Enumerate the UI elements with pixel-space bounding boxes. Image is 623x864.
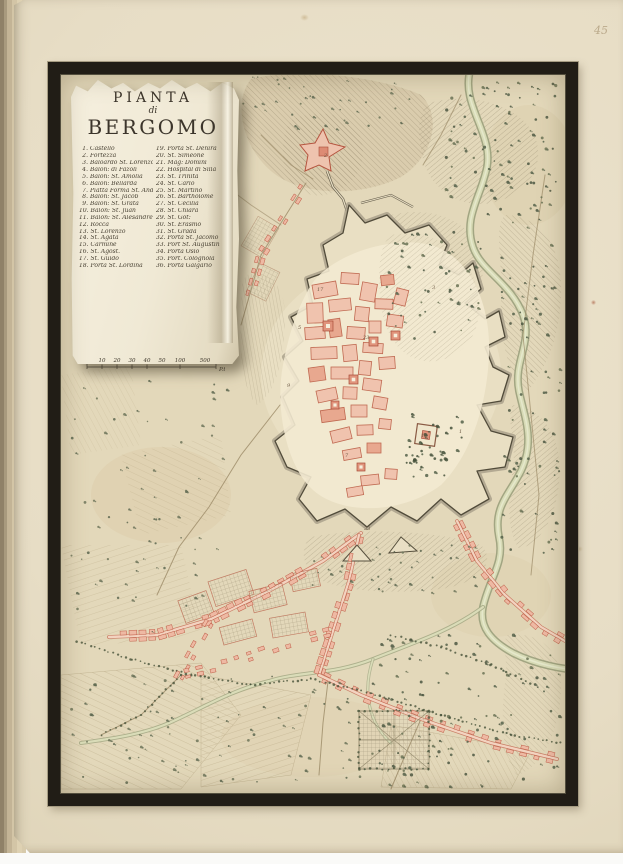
svg-text:10: 10 — [99, 358, 106, 364]
legend-item: 1.Castello — [79, 146, 153, 153]
map-title: PIANTA di BERGOMO — [79, 90, 227, 139]
legend-item: 8.Balon: St. Jacob — [79, 194, 153, 201]
title-line-3: BERGOMO — [79, 116, 227, 139]
title-cartouche: PIANTA di BERGOMO 1.Castello2.Fortezza3.… — [71, 80, 239, 364]
map-legend: 1.Castello2.Fortezza3.Baloardo St. Loren… — [79, 146, 227, 269]
legend-item: 17.St. Guido — [79, 256, 153, 263]
svg-text:33: 33 — [364, 526, 370, 532]
svg-text:2: 2 — [323, 153, 327, 159]
legend-item: 9.Balon: St. Grata — [79, 201, 153, 208]
legend-item: 36.Porta Galgario — [156, 263, 227, 270]
legend-item: 24.St. Carlo — [156, 181, 227, 188]
legend-item: 5.Balon: St. Amolia — [79, 174, 153, 181]
legend-item: 22.Hospital di Silla — [156, 167, 227, 174]
legend-item: 3.Baloardo St. Lorenzo — [79, 160, 153, 167]
legend-item: 30.St. Erasmo — [156, 222, 227, 229]
legend-item: 26.St. Bartholome — [156, 194, 227, 201]
legend-item: 25.St. Martino — [156, 188, 227, 195]
legend-item: 19.Porta St. Denira — [156, 146, 227, 153]
photographed-atlas-page: 45 — [0, 0, 623, 864]
legend-item: 27.St. Cecilia — [156, 201, 227, 208]
legend-item: 16.St. Agost. — [79, 249, 153, 256]
legend-item: 29.St. Got: — [156, 215, 227, 222]
legend-item: 33.Port St. Augustin — [156, 242, 227, 249]
svg-text:100: 100 — [175, 358, 186, 364]
legend-item: 31.St. Grada — [156, 229, 227, 236]
legend-item: 18.Porta St. Lordina — [79, 263, 153, 270]
map-sheet: 12357912172333 PIANTA di BERGOMO 1.Caste… — [61, 75, 565, 793]
legend-item: 13.St. Lorenzo — [79, 229, 153, 236]
legend-item: 14.St. Agata — [79, 235, 153, 242]
svg-text:17: 17 — [317, 287, 324, 293]
black-mat-frame: 12357912172333 PIANTA di BERGOMO 1.Caste… — [48, 62, 578, 806]
svg-text:50: 50 — [159, 358, 166, 364]
legend-item: 23.St. Trinita — [156, 174, 227, 181]
legend-item: 32.Porta St. Jacomo — [156, 235, 227, 242]
title-line-1: PIANTA — [79, 90, 227, 106]
legend-item: 2.Fortezza — [79, 153, 153, 160]
svg-text:12: 12 — [421, 433, 427, 439]
svg-text:20: 20 — [113, 358, 121, 364]
legend-item: 4.Balon: di Fazoli — [79, 167, 153, 174]
legend-item: 10.Balon: St. Juan — [79, 208, 153, 215]
svg-text:5: 5 — [298, 325, 301, 331]
legend-item: 12.Rocca — [79, 222, 153, 229]
svg-text:23: 23 — [362, 335, 369, 341]
svg-text:1: 1 — [459, 429, 462, 435]
legend-item: 11.Balon: St. Alesandre — [79, 215, 153, 222]
legend-item: 35.Port. Colognola — [156, 256, 227, 263]
page-number: 45 — [594, 24, 608, 37]
svg-text:30: 30 — [129, 358, 136, 364]
legend-item: 15.Carmine — [79, 242, 153, 249]
svg-text:40: 40 — [143, 358, 151, 364]
svg-text:500: 500 — [200, 358, 211, 364]
legend-item: 6.Balon: Bellarda — [79, 181, 153, 188]
legend-item: 7.Piatta Forma St. Andrea — [79, 188, 153, 195]
svg-text:P.ti Rg. B.: P.ti Rg. B. — [218, 367, 225, 372]
svg-text:3: 3 — [432, 285, 435, 291]
legend-item: 28.St. Chiara — [156, 208, 227, 215]
legend-item: 34.Porta Osio — [156, 249, 227, 256]
legend-item: 20.St. Simeone — [156, 153, 227, 160]
legend-item: 21.Mag: Domini — [156, 160, 227, 167]
legend-column-2: 19.Porta St. Denira20.St. Simeone21.Mag:… — [156, 146, 227, 269]
legend-column-1: 1.Castello2.Fortezza3.Baloardo St. Loren… — [79, 146, 153, 269]
